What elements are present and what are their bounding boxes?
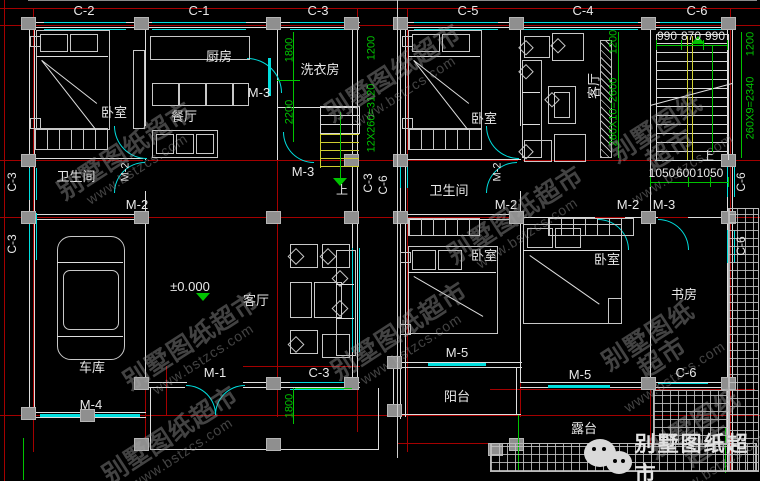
column-block xyxy=(393,211,408,224)
door-arc xyxy=(114,126,147,159)
brand-text: 别墅图纸超市 xyxy=(635,428,760,481)
bed-line xyxy=(36,56,108,57)
dim-1050-a: 1050 xyxy=(649,167,676,179)
dim-tick xyxy=(727,40,728,50)
door-label-m5-a: M-5 xyxy=(446,346,468,359)
dim-stair-r2: 260X9=2340 xyxy=(746,77,757,140)
gridline-h xyxy=(0,8,760,9)
door-label-m1: M-1 xyxy=(204,366,226,379)
door-label-m2-r-rot: M-2 xyxy=(493,163,504,182)
bed-pillow xyxy=(555,228,581,248)
dim-line-h xyxy=(295,388,352,389)
axis-label-c6-top: C-6 xyxy=(687,4,708,17)
door-opening xyxy=(518,160,523,191)
dim-1050-b: 1050 xyxy=(697,167,724,179)
column-block xyxy=(641,211,656,224)
column-block xyxy=(344,17,359,30)
column-block xyxy=(266,211,281,224)
column-block xyxy=(134,377,149,390)
car-line xyxy=(57,336,123,337)
plan-divider-line xyxy=(397,0,398,458)
axis-label-c3-mid: C-3 xyxy=(362,173,374,192)
door-arc xyxy=(283,132,314,163)
wall-segment xyxy=(650,27,651,383)
closet xyxy=(408,218,480,236)
room-label-bedroom-l1: 卧室 xyxy=(101,106,127,119)
window xyxy=(290,22,348,30)
door-arc xyxy=(486,126,519,159)
axis-label-c3-top: C-3 xyxy=(308,4,329,17)
dim-line-h xyxy=(650,182,728,183)
door-label-m5-b: M-5 xyxy=(569,368,591,381)
dim-1800-bottom: 1800 xyxy=(285,394,296,418)
column-block xyxy=(266,17,281,30)
bed-pillow xyxy=(527,228,553,248)
sliding-door xyxy=(428,363,486,366)
column-block xyxy=(21,17,36,30)
column-block xyxy=(21,154,36,167)
column-block xyxy=(393,17,408,30)
room-label-bedroom-r3: 卧室 xyxy=(594,253,620,266)
wall-segment xyxy=(393,414,521,415)
wall-segment xyxy=(150,449,379,450)
door-label-m3-kitchen: M-3 xyxy=(248,86,270,99)
bed-corner-mark xyxy=(400,252,411,263)
axis-label-c2: C-2 xyxy=(74,4,95,17)
stove-unit xyxy=(206,83,233,106)
bed-line xyxy=(408,56,480,57)
column-block xyxy=(393,154,408,167)
dim-1800-left: 1800 xyxy=(285,38,296,62)
dim-1200-mid: 1200 xyxy=(367,36,378,60)
stove-unit xyxy=(233,83,249,106)
column-block xyxy=(344,211,359,224)
axis-label-c6-mid: C-6 xyxy=(377,175,389,194)
dining-chair xyxy=(176,134,194,154)
dining-chair xyxy=(156,134,174,154)
room-label-dining: 餐厅 xyxy=(171,110,197,123)
room-label-balcony: 阳台 xyxy=(444,390,470,403)
axis-label-c5: C-5 xyxy=(458,4,479,17)
column-block xyxy=(21,407,36,420)
axis-label-c6-right-b: C-6 xyxy=(735,236,747,255)
nightstand xyxy=(608,298,622,324)
room-label-bath-l: 卫生间 xyxy=(56,170,95,183)
axis-label-c6-right-a: C-6 xyxy=(735,172,747,191)
bed-corner-mark xyxy=(400,324,411,335)
stove-unit xyxy=(179,83,206,106)
window xyxy=(29,168,37,200)
door-label-m4: M-4 xyxy=(80,398,102,411)
window-label-c3-bottom: C-3 xyxy=(309,366,330,379)
wall-segment xyxy=(277,27,278,160)
dim-stair-r1: 260X10=2600 xyxy=(609,78,620,147)
bed-pillow xyxy=(40,34,68,52)
bed-corner-mark xyxy=(30,118,41,129)
room-label-bedroom-r2: 卧室 xyxy=(471,249,497,262)
column-block xyxy=(641,17,656,30)
stair-rail xyxy=(692,36,693,160)
dim-line-v xyxy=(712,46,713,152)
door-label-m2-l-rot: M-2 xyxy=(121,163,132,182)
wardrobe xyxy=(133,50,145,129)
sofa-line xyxy=(336,284,354,285)
bed-pillow xyxy=(412,250,436,270)
wall-segment xyxy=(516,367,517,415)
closet xyxy=(34,128,108,150)
door-label-m2-r1: M-2 xyxy=(495,198,517,211)
wall-segment xyxy=(28,158,146,159)
column-block xyxy=(387,404,402,417)
wall-segment xyxy=(378,388,379,450)
sofa-line xyxy=(522,92,540,93)
closet xyxy=(408,128,482,150)
door-arc xyxy=(186,385,216,415)
wall-segment xyxy=(398,367,522,368)
door-label-m3-stairs: M-3 xyxy=(292,165,314,178)
window xyxy=(152,22,246,30)
wall-segment xyxy=(145,387,185,388)
door-label-m2-r2: M-2 xyxy=(617,198,639,211)
car-roof xyxy=(63,270,119,330)
room-label-kitchen: 厨房 xyxy=(206,50,232,63)
column-block xyxy=(387,356,402,369)
window xyxy=(522,22,638,30)
dim-line-v xyxy=(23,438,24,480)
wall-segment xyxy=(28,214,146,215)
column-block xyxy=(266,377,281,390)
coffee-table xyxy=(554,92,570,118)
dim-990-b: 990 xyxy=(705,30,725,42)
column-block xyxy=(266,438,281,451)
window xyxy=(414,22,498,30)
column-block xyxy=(134,17,149,30)
room-label-bedroom-r1: 卧室 xyxy=(471,112,497,125)
elevation-label: ±0.000 xyxy=(170,280,210,293)
room-label-living-r: 客厅 xyxy=(588,73,601,99)
bed-corner-mark xyxy=(402,36,413,47)
wall-segment xyxy=(28,219,146,220)
column-block xyxy=(134,211,149,224)
floorplan-canvas: C-2C-1C-3C-5C-4C-6厨房洗衣房M-3卧室餐厅18002200卫生… xyxy=(0,0,760,481)
sofa-line xyxy=(336,318,354,319)
dim-line-v xyxy=(340,112,341,180)
bed-line xyxy=(523,250,620,251)
axis-label-c1: C-1 xyxy=(189,4,210,17)
sliding-door xyxy=(548,385,610,388)
door-label-m3-r: M-3 xyxy=(653,198,675,211)
axis-label-c4: C-4 xyxy=(573,4,594,17)
dim-line-h xyxy=(656,45,728,46)
wall-segment xyxy=(400,214,521,215)
door-arc xyxy=(658,219,689,250)
stair-up-right: 上 xyxy=(702,150,714,162)
wall-segment xyxy=(400,159,521,160)
wechat-icon xyxy=(582,439,635,477)
bed-pillow xyxy=(442,34,470,52)
axis-label-c3-left-b: C-3 xyxy=(6,234,18,253)
door-label-m2-l: M-2 xyxy=(126,198,148,211)
dim-1200-r2: 1200 xyxy=(746,32,757,56)
room-label-bath-r: 卫生间 xyxy=(429,184,468,197)
column-block xyxy=(134,438,149,451)
bed-line xyxy=(408,272,496,273)
room-label-study: 书房 xyxy=(671,288,697,301)
wall-segment xyxy=(655,160,728,161)
gridline-h xyxy=(397,443,490,444)
sofa xyxy=(322,334,350,358)
viewport-top-edge xyxy=(28,0,757,1)
sofa-line xyxy=(522,124,540,125)
stair-up-left: 上 xyxy=(336,184,348,196)
dim-line-v xyxy=(741,32,742,158)
gridline-h xyxy=(243,366,360,367)
car-line xyxy=(57,262,123,263)
bed-pillow xyxy=(412,34,440,52)
dim-tick xyxy=(728,177,729,187)
window-label-c6-bottom: C-6 xyxy=(676,366,697,379)
column-block xyxy=(641,377,656,390)
brand-logo: 别墅图纸超市 xyxy=(582,428,760,481)
room-label-garage: 车库 xyxy=(79,361,105,374)
door-arc xyxy=(215,385,245,415)
column-block xyxy=(509,17,524,30)
room-label-laundry: 洗衣房 xyxy=(300,63,339,76)
bed-pillow xyxy=(438,250,462,270)
stair-rail xyxy=(687,36,688,160)
dining-chair xyxy=(196,134,214,154)
dim-870: 870 xyxy=(681,30,701,42)
wall-segment xyxy=(520,27,521,383)
wall-segment xyxy=(150,388,151,450)
gridline-h xyxy=(0,160,760,161)
column-block xyxy=(21,211,36,224)
dim-2200-left: 2200 xyxy=(285,100,296,124)
axis-label-c3-left-a: C-3 xyxy=(6,172,18,191)
kitchen-counter xyxy=(150,36,250,60)
bed-pillow xyxy=(70,34,98,52)
dim-stair-left: 12X260=3120 xyxy=(367,84,378,153)
dim-1200-r1: 1200 xyxy=(609,30,620,54)
dim-line-h xyxy=(277,80,300,81)
dim-600: 600 xyxy=(676,167,696,179)
wall-segment xyxy=(145,382,187,383)
window xyxy=(44,22,126,30)
dim-990-a: 990 xyxy=(657,30,677,42)
elevation-triangle xyxy=(196,293,210,301)
stove-unit xyxy=(152,83,179,106)
sofa xyxy=(554,134,586,162)
column-block xyxy=(509,211,524,224)
sofa xyxy=(290,282,312,318)
bed-corner-mark xyxy=(30,36,41,47)
bed-corner-mark xyxy=(402,118,413,129)
gridline-v xyxy=(166,366,167,415)
room-label-living-l: 客厅 xyxy=(243,294,269,307)
